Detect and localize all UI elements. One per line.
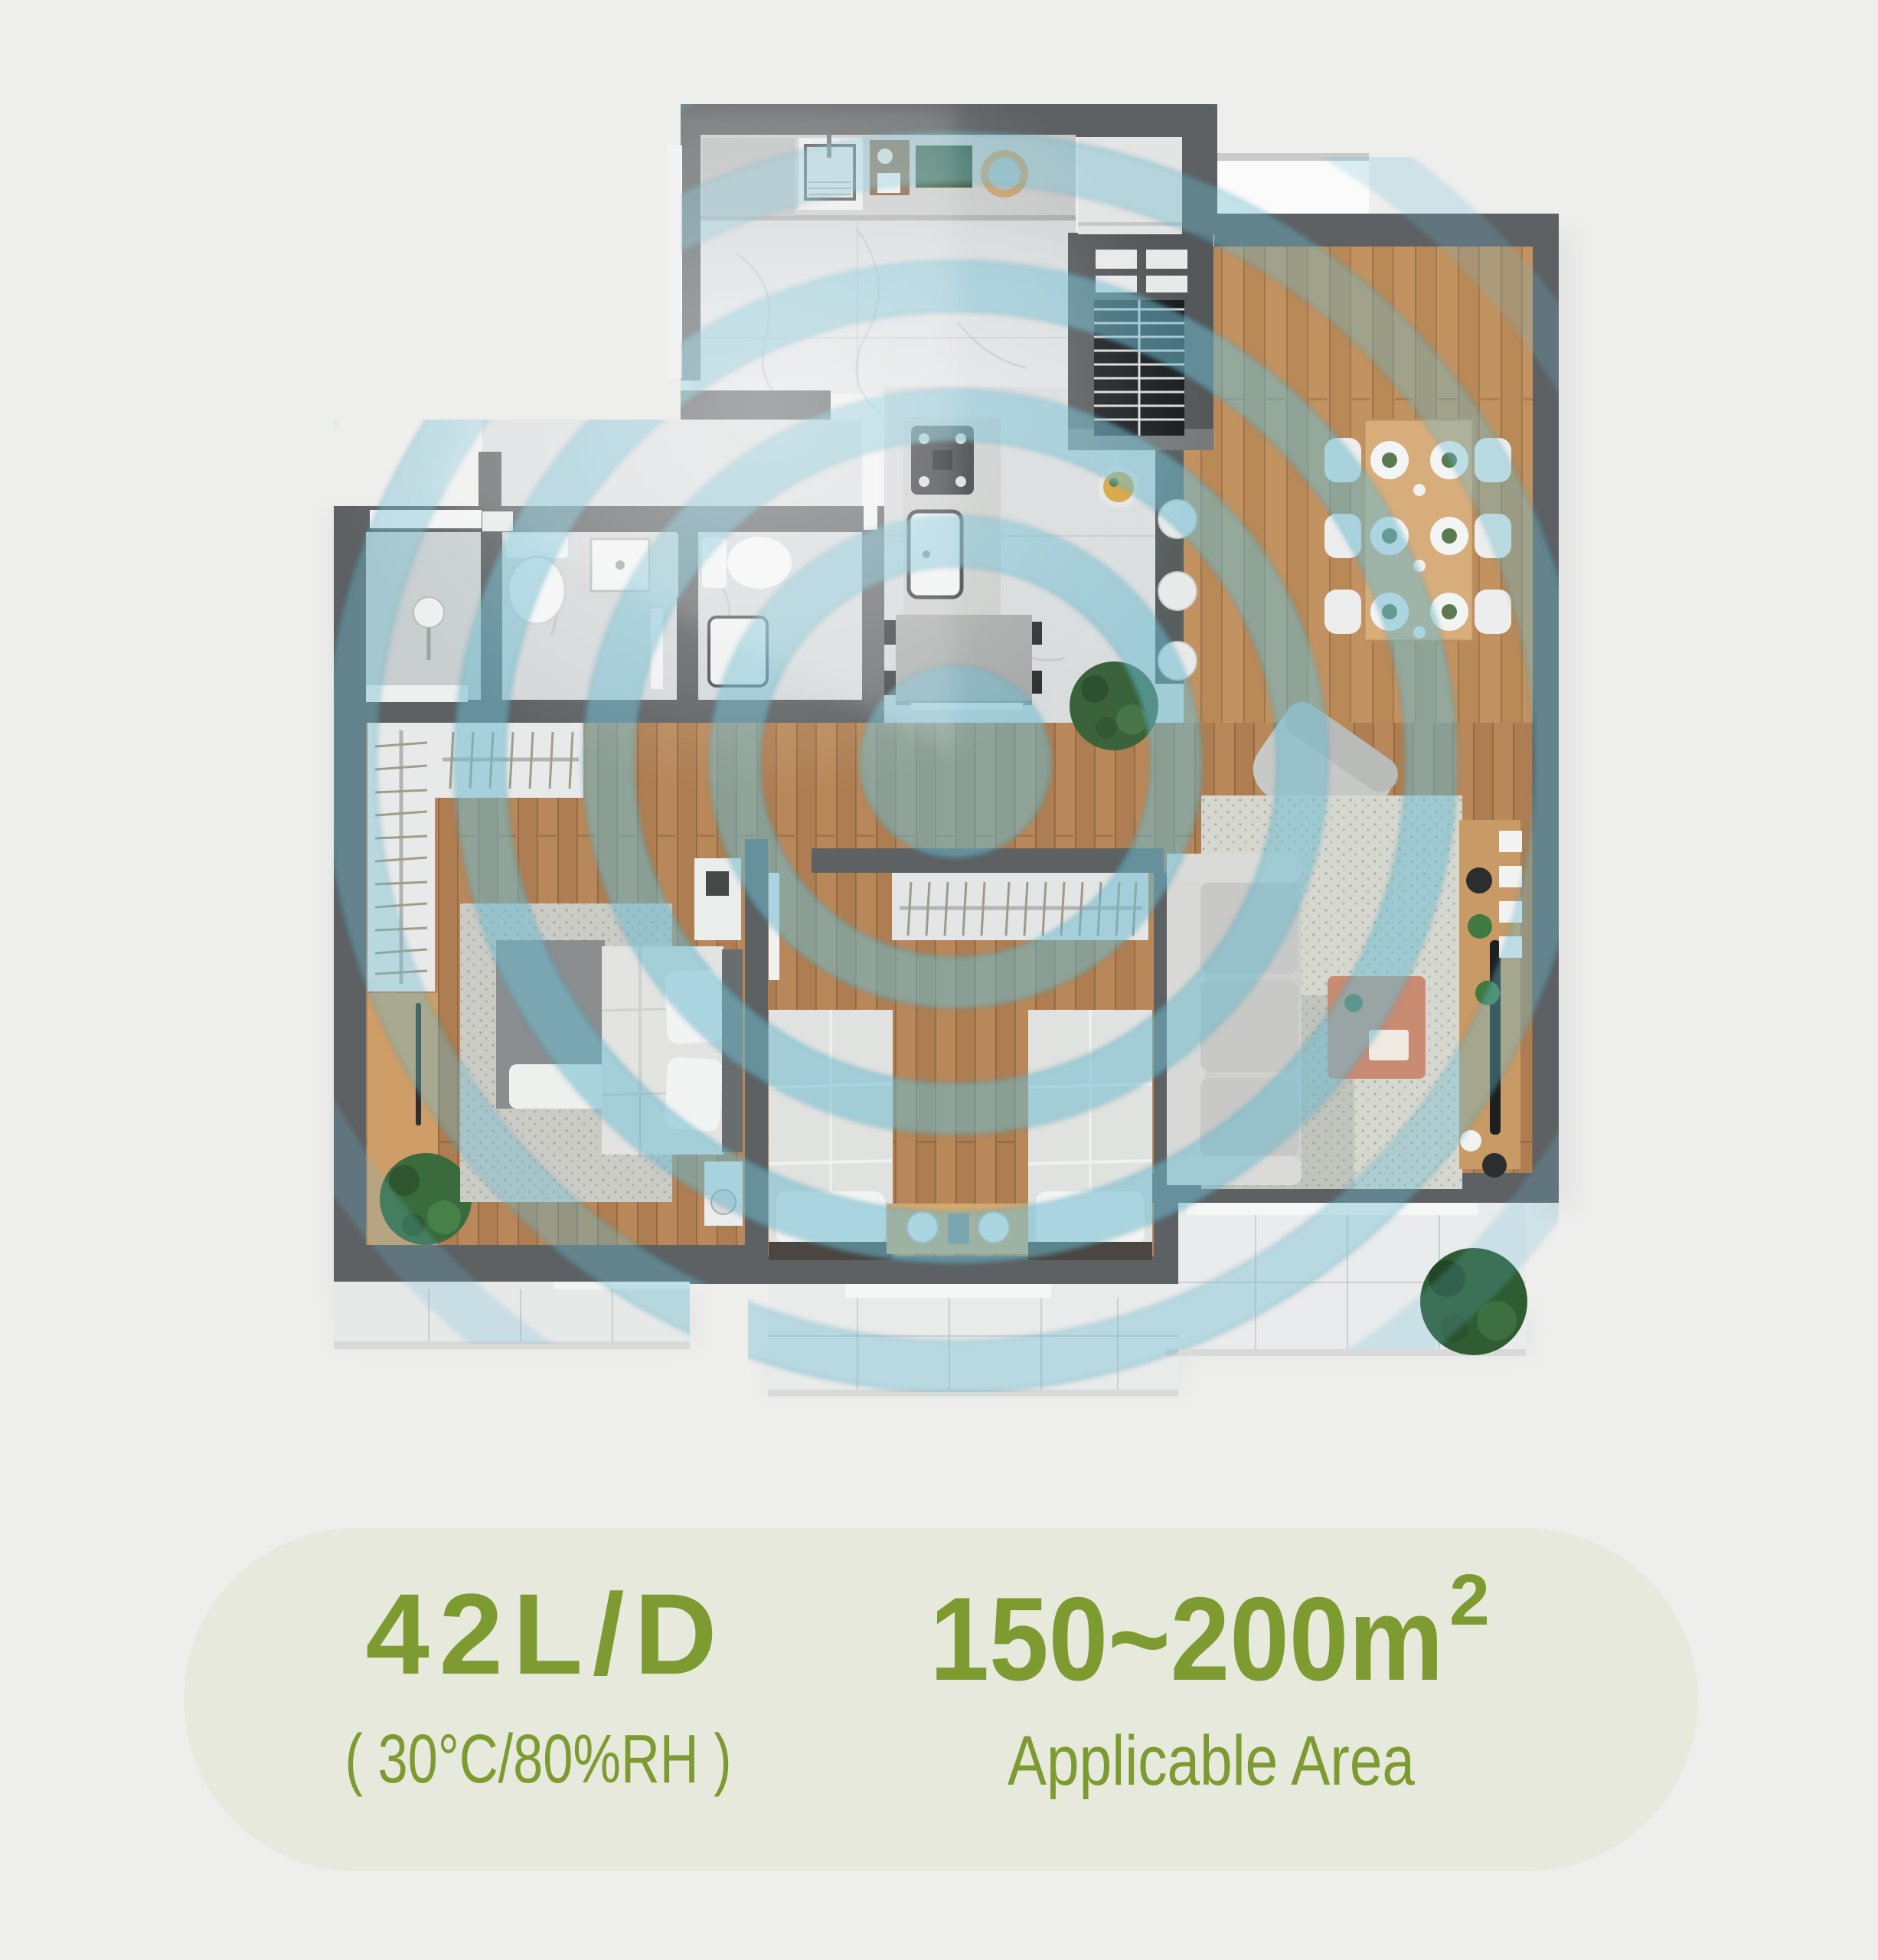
svg-text:( 30°C/80%RH ): ( 30°C/80%RH ) — [345, 1721, 732, 1798]
svg-text:42L/D: 42L/D — [366, 1570, 717, 1698]
svg-text:2: 2 — [1449, 1560, 1490, 1641]
svg-text:Applicable Area: Applicable Area — [1008, 1722, 1416, 1800]
svg-text:150~200m: 150~200m — [930, 1573, 1444, 1705]
